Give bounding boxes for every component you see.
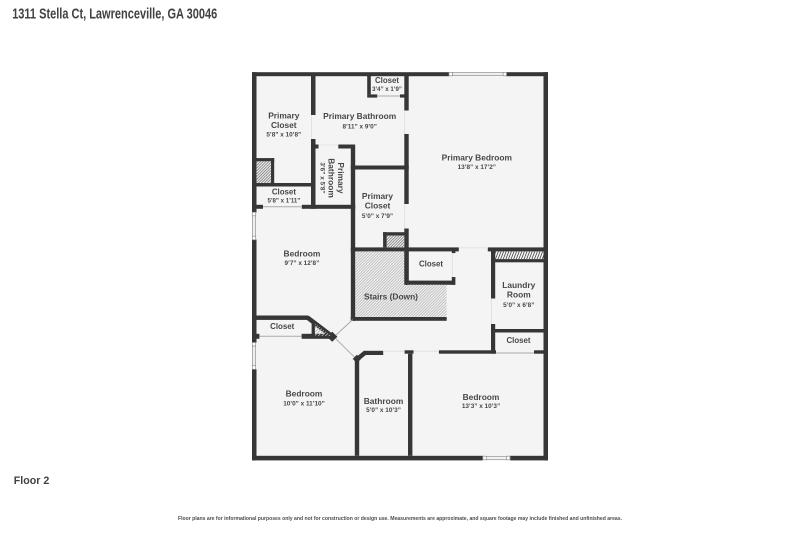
svg-text:Bedroom: Bedroom (286, 388, 323, 398)
svg-text:10’0” x 11’10”: 10’0” x 11’10” (283, 401, 325, 408)
svg-text:8’11” x 9’0”: 8’11” x 9’0” (342, 123, 376, 130)
svg-text:Closet: Closet (272, 187, 296, 196)
svg-text:3’6” x 5’8”: 3’6” x 5’8” (319, 162, 326, 193)
svg-text:Bathroom: Bathroom (364, 396, 404, 406)
svg-text:1311 Stella Ct, Lawrenceville,: 1311 Stella Ct, Lawrenceville, GA 30046 (12, 6, 217, 22)
svg-text:Closet: Closet (419, 260, 443, 269)
svg-text:5’0” x 6’8”: 5’0” x 6’8” (503, 302, 534, 309)
svg-text:Stairs (Down): Stairs (Down) (364, 292, 418, 302)
svg-text:Primary Bathroom: Primary Bathroom (323, 111, 396, 121)
svg-text:Closet: Closet (506, 336, 530, 345)
svg-text:Closet: Closet (365, 200, 391, 210)
svg-text:Bedroom: Bedroom (284, 249, 321, 259)
svg-text:5’0” x 7’9”: 5’0” x 7’9” (362, 213, 393, 220)
svg-text:9’7” x 12’8”: 9’7” x 12’8” (284, 260, 319, 267)
svg-text:13’3” x 10’3”: 13’3” x 10’3” (462, 403, 500, 410)
svg-text:13’8” x 17’2”: 13’8” x 17’2” (458, 164, 496, 171)
svg-text:Closet: Closet (270, 322, 294, 331)
svg-text:3’4” x 1’9”: 3’4” x 1’9” (372, 86, 402, 93)
svg-text:Bathroom: Bathroom (327, 158, 337, 198)
svg-text:5’0” x 10’3”: 5’0” x 10’3” (366, 407, 401, 414)
svg-text:Closet: Closet (375, 76, 399, 85)
svg-text:Floor plans are for informatio: Floor plans are for informational purpos… (178, 516, 623, 522)
svg-text:Primary Bedroom: Primary Bedroom (442, 153, 512, 163)
svg-text:Primary: Primary (336, 162, 346, 194)
svg-text:Floor 2: Floor 2 (14, 475, 50, 487)
svg-text:Closet: Closet (271, 120, 297, 130)
svg-text:5’8” x 1’11”: 5’8” x 1’11” (267, 198, 300, 205)
svg-text:Bedroom: Bedroom (463, 392, 500, 402)
svg-text:5’8” x 10’8”: 5’8” x 10’8” (266, 132, 301, 139)
svg-text:Room: Room (507, 290, 531, 300)
